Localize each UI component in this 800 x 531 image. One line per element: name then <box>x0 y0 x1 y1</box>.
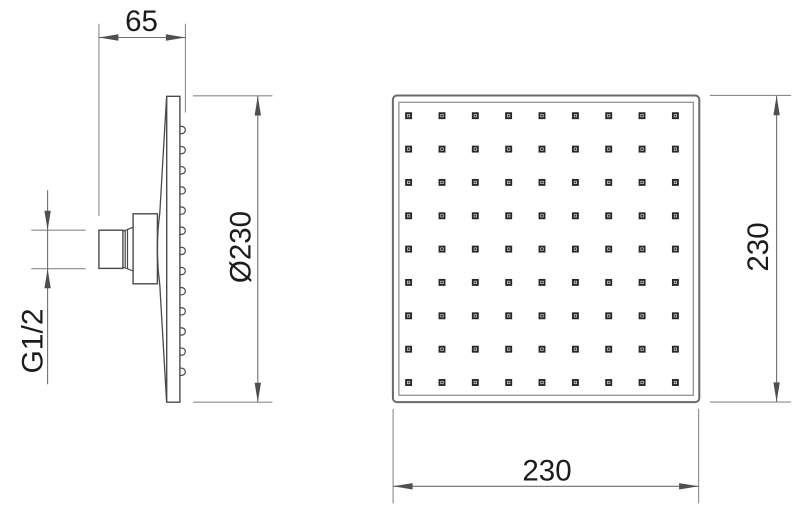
svg-text:230: 230 <box>742 222 775 271</box>
svg-text:G1/2: G1/2 <box>17 308 50 373</box>
svg-text:65: 65 <box>125 5 158 38</box>
svg-text:230: 230 <box>522 455 571 488</box>
svg-text:Ø230: Ø230 <box>225 211 258 283</box>
